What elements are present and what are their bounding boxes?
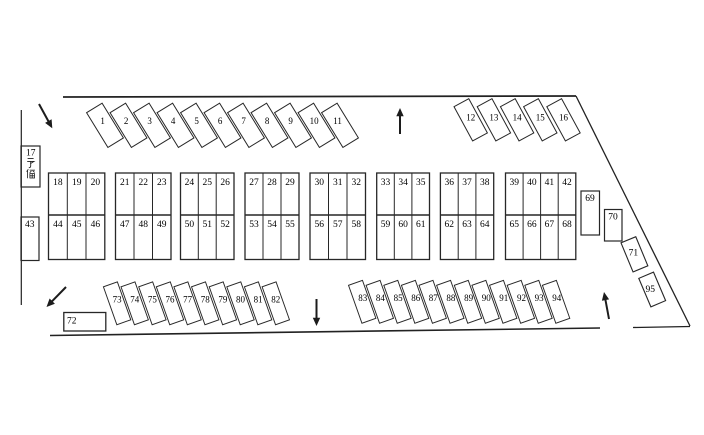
svg-text:9: 9 [288, 116, 293, 126]
svg-text:2: 2 [124, 116, 129, 126]
svg-text:31: 31 [333, 178, 343, 188]
svg-text:54: 54 [267, 220, 277, 230]
svg-text:7: 7 [241, 116, 246, 126]
svg-text:75: 75 [148, 294, 158, 304]
svg-text:3: 3 [147, 116, 152, 126]
svg-text:40: 40 [527, 178, 537, 188]
svg-text:33: 33 [381, 178, 391, 188]
svg-text:39: 39 [510, 178, 520, 188]
svg-text:23: 23 [157, 178, 167, 188]
svg-text:88: 88 [446, 293, 456, 303]
svg-text:5: 5 [194, 116, 199, 126]
svg-text:30: 30 [314, 178, 324, 188]
svg-text:1: 1 [100, 116, 105, 126]
svg-text:41: 41 [545, 178, 555, 188]
svg-text:73: 73 [113, 294, 123, 304]
svg-text:91: 91 [499, 293, 508, 303]
svg-text:59: 59 [381, 220, 391, 230]
svg-text:15: 15 [536, 112, 546, 122]
svg-text:4: 4 [171, 116, 176, 126]
svg-text:45: 45 [72, 220, 82, 230]
svg-text:29: 29 [285, 178, 295, 188]
svg-text:16: 16 [559, 112, 569, 122]
svg-text:22: 22 [138, 178, 148, 188]
svg-text:17: 17 [26, 149, 36, 159]
svg-text:32: 32 [351, 178, 361, 188]
svg-text:58: 58 [351, 220, 361, 230]
svg-text:93: 93 [535, 293, 545, 303]
svg-text:83: 83 [358, 293, 368, 303]
svg-text:47: 47 [120, 220, 130, 230]
svg-text:57: 57 [333, 220, 343, 230]
svg-text:42: 42 [562, 178, 572, 188]
svg-text:67: 67 [545, 220, 555, 230]
svg-text:21: 21 [120, 178, 130, 188]
svg-text:76: 76 [166, 294, 176, 304]
svg-text:85: 85 [394, 293, 404, 303]
svg-text:70: 70 [608, 213, 618, 223]
svg-text:61: 61 [416, 220, 426, 230]
svg-text:48: 48 [138, 220, 148, 230]
svg-text:94: 94 [552, 293, 562, 303]
svg-text:28: 28 [267, 178, 277, 188]
svg-text:74: 74 [130, 294, 140, 304]
svg-text:80: 80 [236, 294, 246, 304]
svg-text:66: 66 [527, 220, 537, 230]
svg-text:13: 13 [489, 112, 499, 122]
svg-text:68: 68 [562, 220, 572, 230]
svg-text:84: 84 [376, 293, 386, 303]
svg-text:65: 65 [510, 220, 520, 230]
svg-text:64: 64 [480, 220, 490, 230]
svg-text:12: 12 [466, 112, 475, 122]
svg-text:95: 95 [645, 285, 655, 295]
svg-text:81: 81 [254, 294, 263, 304]
svg-text:50: 50 [185, 220, 195, 230]
svg-text:69: 69 [585, 194, 595, 204]
svg-text:18: 18 [53, 178, 63, 188]
svg-text:20: 20 [91, 178, 101, 188]
svg-text:25: 25 [202, 178, 212, 188]
svg-text:86: 86 [411, 293, 421, 303]
svg-text:89: 89 [464, 293, 474, 303]
svg-text:19: 19 [72, 178, 82, 188]
svg-text:26: 26 [220, 178, 230, 188]
svg-text:8: 8 [265, 116, 270, 126]
svg-text:77: 77 [183, 294, 193, 304]
svg-text:92: 92 [517, 293, 526, 303]
svg-text:62: 62 [445, 220, 455, 230]
svg-text:52: 52 [220, 220, 230, 230]
svg-text:34: 34 [398, 178, 408, 188]
svg-text:35: 35 [416, 178, 426, 188]
svg-text:90: 90 [482, 293, 492, 303]
svg-text:46: 46 [91, 220, 101, 230]
svg-text:56: 56 [314, 220, 324, 230]
svg-text:36: 36 [445, 178, 455, 188]
svg-text:27: 27 [249, 178, 259, 188]
svg-text:79: 79 [218, 294, 228, 304]
svg-text:55: 55 [285, 220, 295, 230]
svg-text:37: 37 [462, 178, 472, 188]
svg-text:6: 6 [218, 116, 223, 126]
svg-text:43: 43 [25, 220, 35, 230]
svg-text:82: 82 [271, 294, 280, 304]
svg-text:44: 44 [53, 220, 63, 230]
svg-text:11: 11 [333, 116, 342, 126]
svg-text:49: 49 [157, 220, 167, 230]
svg-text:53: 53 [249, 220, 259, 230]
svg-text:78: 78 [201, 294, 211, 304]
svg-text:38: 38 [480, 178, 490, 188]
svg-text:60: 60 [398, 220, 408, 230]
svg-text:63: 63 [462, 220, 472, 230]
svg-text:87: 87 [429, 293, 439, 303]
svg-text:24: 24 [185, 178, 195, 188]
svg-text:10: 10 [310, 116, 320, 126]
svg-text:71: 71 [629, 249, 639, 259]
svg-text:14: 14 [513, 112, 523, 122]
svg-text:72: 72 [67, 316, 77, 326]
svg-text:51: 51 [202, 220, 212, 230]
